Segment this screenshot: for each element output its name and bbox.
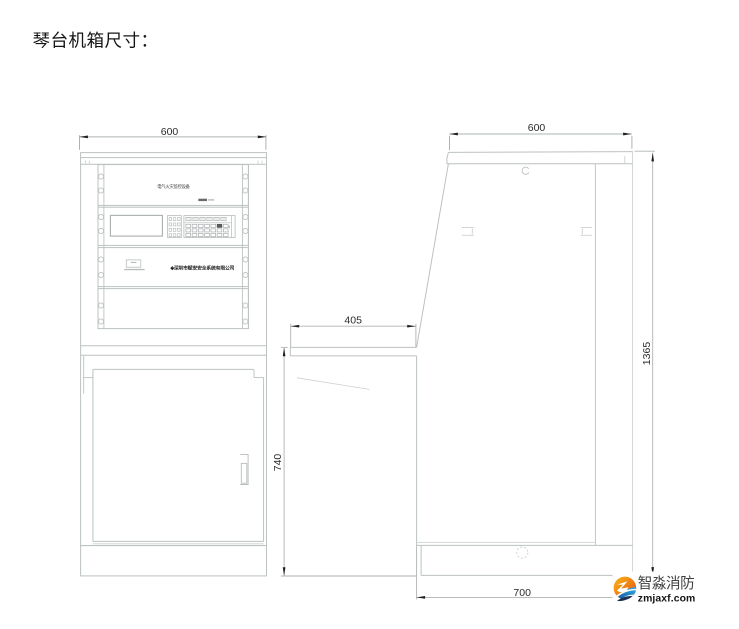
- svg-text:zmjaxf.com: zmjaxf.com: [638, 594, 696, 605]
- svg-text:1365: 1365: [641, 342, 653, 366]
- svg-text:405: 405: [344, 315, 362, 327]
- svg-text:700: 700: [513, 587, 531, 599]
- svg-text:智淼消防: 智淼消防: [638, 574, 694, 592]
- svg-text:琴台机箱尺寸：: 琴台机箱尺寸：: [33, 31, 159, 51]
- svg-text:740: 740: [272, 454, 284, 472]
- svg-text:电气火灾监控设备: 电气火灾监控设备: [157, 183, 190, 190]
- svg-text:600: 600: [528, 122, 546, 134]
- svg-text:◈深圳市赋安安全系统有限公司: ◈深圳市赋安安全系统有限公司: [169, 265, 234, 272]
- svg-text:600: 600: [161, 126, 179, 138]
